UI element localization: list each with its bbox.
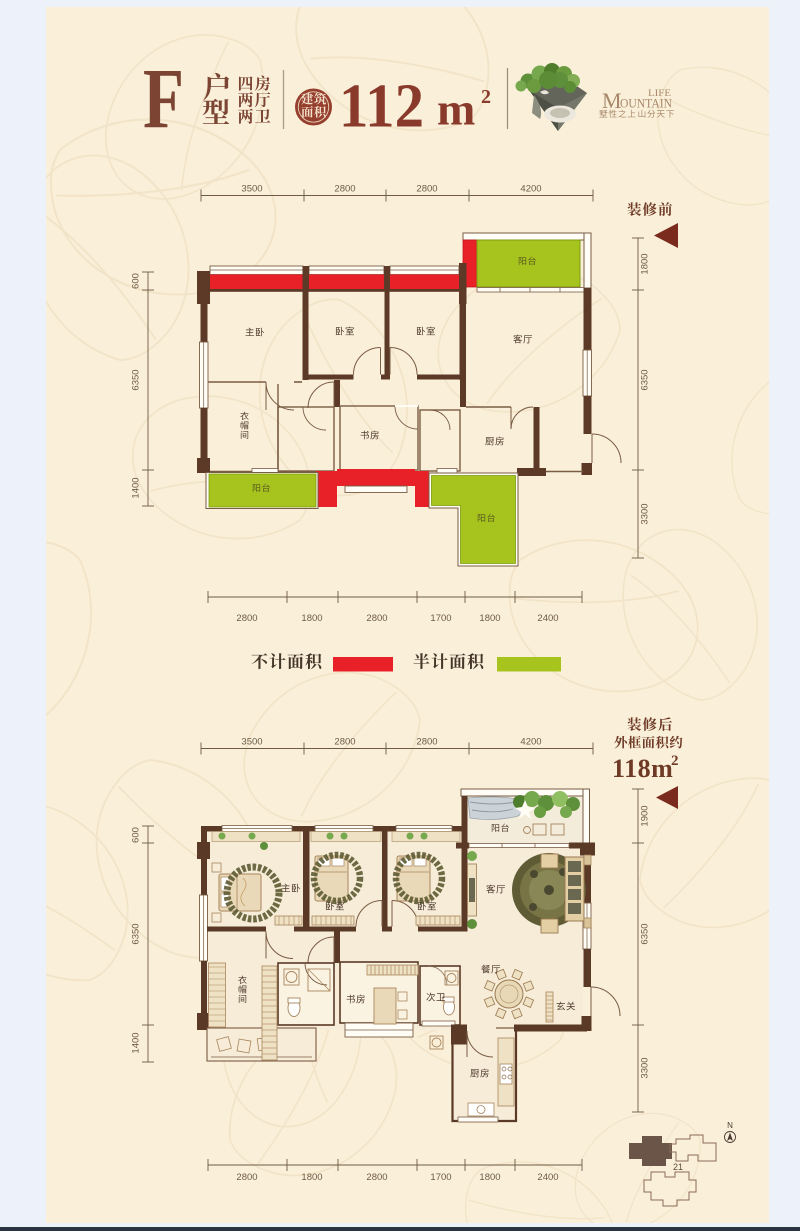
svg-text:2800: 2800 [236,1172,257,1183]
svg-text:1800: 1800 [640,253,651,274]
svg-text:2: 2 [481,86,491,108]
svg-text:6350: 6350 [131,923,142,944]
svg-text:1800: 1800 [479,613,500,624]
svg-text:2800: 2800 [416,737,437,748]
svg-text:2800: 2800 [366,613,387,624]
svg-text:3300: 3300 [640,503,651,524]
svg-text:m: m [437,84,475,135]
svg-text:2800: 2800 [416,184,437,195]
svg-text:1800: 1800 [479,1172,500,1183]
svg-text:M: M [602,88,622,113]
svg-text:2800: 2800 [334,184,355,195]
svg-text:N: N [727,1121,733,1130]
svg-text:112: 112 [339,73,424,141]
svg-text:2: 2 [671,753,679,769]
svg-text:6350: 6350 [131,369,142,390]
svg-text:1700: 1700 [430,613,451,624]
svg-text:1700: 1700 [430,1172,451,1183]
svg-text:2800: 2800 [236,613,257,624]
svg-text:1800: 1800 [301,613,322,624]
svg-text:2800: 2800 [366,1172,387,1183]
svg-text:6350: 6350 [640,369,651,390]
svg-text:2400: 2400 [537,1172,558,1183]
svg-text:1800: 1800 [301,1172,322,1183]
svg-text:3300: 3300 [640,1057,651,1078]
svg-text:1400: 1400 [131,1032,142,1053]
svg-text:21: 21 [673,1162,683,1172]
svg-text:F: F [143,51,184,147]
svg-text:1900: 1900 [640,805,651,826]
svg-text:2400: 2400 [537,613,558,624]
svg-text:3500: 3500 [241,184,262,195]
svg-text:600: 600 [131,827,142,843]
svg-text:OUNTAIN: OUNTAIN [620,97,672,111]
svg-text:3500: 3500 [241,737,262,748]
svg-text:4200: 4200 [520,737,541,748]
svg-text:2800: 2800 [334,737,355,748]
svg-text:1400: 1400 [131,477,142,498]
svg-text:4200: 4200 [520,184,541,195]
svg-text:600: 600 [131,273,142,289]
svg-text:118m: 118m [612,754,673,783]
svg-text:6350: 6350 [640,923,651,944]
